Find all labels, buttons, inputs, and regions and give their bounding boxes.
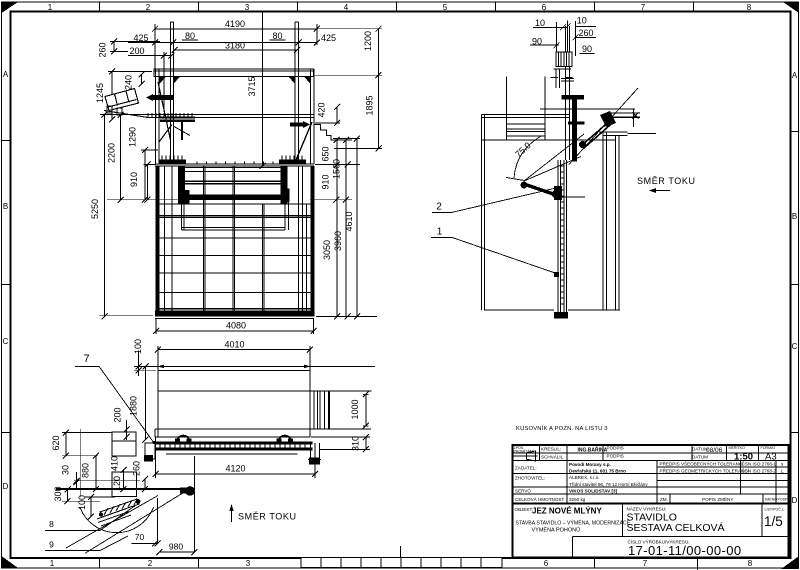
svg-text:120: 120 (112, 476, 122, 491)
svg-text:310: 310 (351, 436, 361, 451)
svg-text:D: D (792, 496, 798, 505)
svg-text:PODPIS: PODPIS (607, 446, 624, 451)
svg-text:7: 7 (643, 559, 648, 568)
svg-text:2: 2 (148, 559, 153, 568)
svg-text:1/5: 1/5 (764, 514, 783, 529)
svg-text:ING.BAŘINA: ING.BAŘINA (578, 445, 608, 453)
svg-text:SMĚR TOKU: SMĚR TOKU (637, 176, 696, 186)
svg-text:VÝMĚNA POHONŮ: VÝMĚNA POHONŮ (532, 526, 581, 534)
svg-text:KUSOVNÍK A POZN. NA LISTU 3: KUSOVNÍK A POZN. NA LISTU 3 (516, 425, 608, 432)
svg-text:POPIS ZMĚNY: POPIS ZMĚNY (702, 495, 733, 502)
svg-text:90: 90 (582, 44, 592, 54)
svg-text:650: 650 (321, 146, 331, 161)
svg-text:NÁZEV VÝKRESU:: NÁZEV VÝKRESU: (627, 506, 667, 512)
svg-text:B: B (792, 212, 797, 221)
svg-text:3180: 3180 (225, 41, 245, 51)
svg-text:KRESLIL:: KRESLIL: (541, 447, 561, 452)
svg-text:425: 425 (321, 33, 336, 43)
svg-text:30: 30 (60, 465, 70, 475)
svg-text:200: 200 (129, 46, 144, 56)
svg-text:3250 kg: 3250 kg (569, 497, 586, 502)
svg-text:7: 7 (83, 353, 89, 365)
svg-text:3715: 3715 (247, 76, 257, 96)
svg-text:4190: 4190 (225, 19, 245, 29)
svg-text:ZADATEL:: ZADATEL: (515, 466, 537, 471)
svg-text:880: 880 (81, 463, 91, 478)
svg-text:Povodí Moravy s.p.: Povodí Moravy s.p. (569, 462, 611, 467)
svg-text:1290: 1290 (128, 127, 138, 147)
svg-text:8: 8 (747, 3, 752, 12)
svg-text:260: 260 (98, 42, 108, 57)
svg-text:260: 260 (132, 461, 142, 476)
svg-text:SERVÓ: SERVÓ (515, 488, 531, 494)
svg-text:910: 910 (321, 174, 331, 189)
svg-text:1: 1 (437, 227, 443, 238)
svg-text:1000: 1000 (350, 399, 360, 419)
svg-text:ČSN ISO 2768-1: ČSN ISO 2768-1 (742, 461, 777, 467)
svg-text:JEZ NOVÉ MLÝNY: JEZ NOVÉ MLÝNY (532, 507, 602, 516)
svg-text:A: A (792, 71, 798, 80)
svg-text:8: 8 (748, 559, 753, 568)
svg-text:SCHVÁLIL: SCHVÁLIL (541, 453, 564, 459)
svg-text:PODPIS: PODPIS (607, 454, 624, 459)
svg-text:LIST/POČ.L.: LIST/POČ.L. (765, 507, 785, 512)
svg-text:80: 80 (272, 31, 282, 41)
svg-text:4120: 4120 (225, 464, 245, 474)
svg-text:10: 10 (577, 16, 587, 26)
svg-text:10: 10 (535, 18, 545, 28)
svg-text:2200: 2200 (107, 143, 117, 163)
svg-text:300: 300 (53, 486, 63, 501)
svg-text:MĚŘÍTKO: MĚŘÍTKO (729, 445, 746, 450)
svg-text:420: 420 (317, 102, 327, 117)
svg-text:2: 2 (146, 3, 151, 12)
svg-text:SMĚR TOKU: SMĚR TOKU (238, 512, 297, 522)
svg-text:4080: 4080 (226, 321, 246, 331)
svg-text:3050: 3050 (322, 240, 332, 260)
svg-text:1200: 1200 (363, 31, 373, 51)
svg-text:7: 7 (641, 3, 646, 12)
svg-text:1: 1 (48, 3, 53, 12)
svg-text:Devřařská 11, 601 75 Brno: Devřařská 11, 601 75 Brno (569, 468, 626, 473)
svg-text:1895: 1895 (365, 95, 375, 115)
svg-text:C: C (3, 337, 9, 346)
svg-text:SESTAVA CELKOVÁ: SESTAVA CELKOVÁ (627, 521, 725, 534)
svg-text:17-01-11/00-00-00: 17-01-11/00-00-00 (628, 543, 742, 558)
svg-text:240: 240 (124, 75, 134, 90)
svg-text:OBJEKT:: OBJEKT: (515, 507, 534, 512)
svg-text:4010: 4010 (224, 340, 244, 350)
svg-text:PODP.: PODP. (778, 498, 789, 502)
svg-text:L: L (781, 468, 784, 473)
svg-text:9: 9 (49, 540, 54, 550)
svg-text:980: 980 (169, 542, 183, 552)
svg-text:STAVBA STAVIDLO – VÝMĚNA, MODE: STAVBA STAVIDLO – VÝMĚNA, MODERNIZACE (516, 519, 631, 527)
svg-text:8: 8 (49, 519, 54, 529)
svg-text:4: 4 (344, 3, 349, 12)
svg-text:1: 1 (50, 559, 55, 568)
svg-text:08/06: 08/06 (706, 447, 723, 454)
svg-text:D: D (3, 482, 9, 491)
svg-text:C: C (792, 342, 798, 351)
svg-text:PŘEDPIS GEOMETRICKÝCH TOLERANC: PŘEDPIS GEOMETRICKÝCH TOLERANCÍ (660, 466, 750, 473)
svg-text:1560: 1560 (332, 159, 342, 179)
svg-text:ALBREX, s.r.o.: ALBREX, s.r.o. (569, 475, 600, 480)
svg-text:3: 3 (246, 559, 251, 568)
svg-text:70: 70 (135, 532, 145, 542)
svg-text:FORMÁT: FORMÁT (761, 446, 777, 450)
svg-text:3: 3 (245, 3, 250, 12)
svg-text:620: 620 (51, 435, 61, 450)
svg-text:DATUM: DATUM (692, 454, 708, 459)
svg-text:VIKOS SOLIDSTAV [3]: VIKOS SOLIDSTAV [3] (569, 489, 618, 494)
svg-text:80: 80 (185, 31, 195, 41)
svg-text:410: 410 (110, 456, 120, 471)
svg-text:A: A (3, 70, 9, 79)
svg-text:3960: 3960 (333, 231, 343, 251)
svg-text:CELKOVÁ HMOTNOST: CELKOVÁ HMOTNOST (515, 496, 564, 502)
svg-text:1880: 1880 (129, 396, 139, 416)
svg-text:ZM.: ZM. (660, 497, 668, 502)
svg-text:5250: 5250 (90, 199, 100, 219)
svg-text:6: 6 (542, 3, 547, 12)
svg-text:2: 2 (436, 202, 442, 213)
svg-text:6: 6 (544, 559, 549, 568)
svg-text:Třídní stavitel 96, 79 12 Horn: Třídní stavitel 96, 79 12 Horní Břežány (569, 482, 648, 487)
svg-text:4610: 4610 (344, 211, 354, 231)
svg-text:200: 200 (113, 407, 123, 422)
svg-text:910: 910 (129, 172, 139, 187)
svg-text:B: B (3, 202, 8, 211)
svg-text:100: 100 (133, 339, 143, 354)
svg-text:ČSN ISO 2768-2: ČSN ISO 2768-2 (742, 467, 777, 473)
svg-text:JMÉNO: JMÉNO (765, 497, 778, 502)
svg-text:1245: 1245 (95, 83, 105, 103)
svg-text:260: 260 (578, 28, 593, 38)
svg-text:ZHOTOVITEL:: ZHOTOVITEL: (515, 476, 545, 481)
svg-text:5: 5 (443, 3, 448, 12)
svg-text:PŘEDPIS VŠEOBECNÝCH TOLERANCÍ: PŘEDPIS VŠEOBECNÝCH TOLERANCÍ (660, 460, 745, 467)
